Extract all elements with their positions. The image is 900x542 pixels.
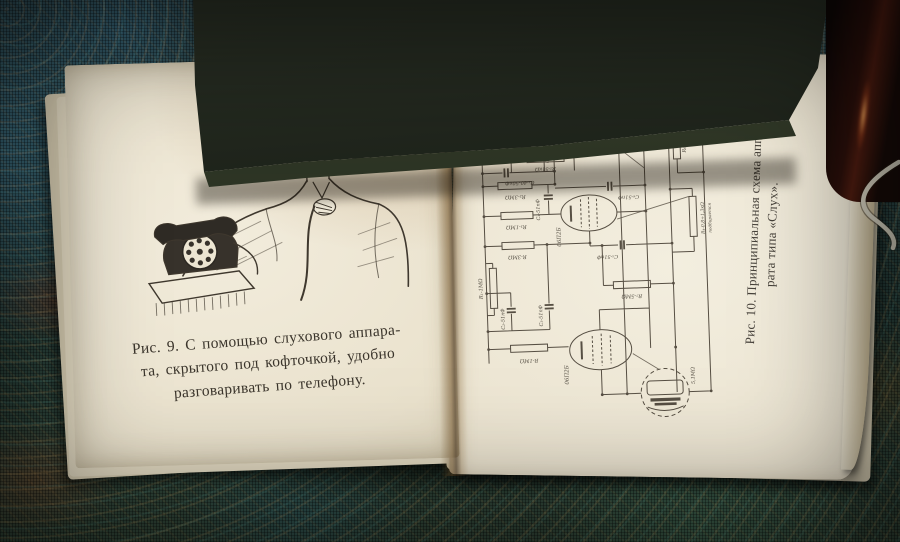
white-cable xyxy=(843,158,900,250)
label-c2: C₂-51пФ xyxy=(500,308,507,329)
label-mic: 5,1МΩ xyxy=(690,367,697,384)
label-tube3: 06П2Б xyxy=(564,365,571,385)
vacuum-tube-2 xyxy=(560,194,617,232)
label-c6: C₆-51пФ xyxy=(618,193,639,200)
label-r1: R₁-1МΩ xyxy=(478,278,485,301)
vacuum-tube-3 xyxy=(569,329,632,371)
label-c4: C₄-51пФ xyxy=(535,199,542,220)
label-r7: R₇-5МΩ xyxy=(621,292,644,299)
label-r-mid: R-3МΩ xyxy=(507,253,527,260)
label-r4-note: подбирается xyxy=(707,203,713,233)
label-c3: C₃-51пФ xyxy=(538,305,545,326)
label-c5: C₅-51пФ xyxy=(597,253,618,260)
label-r3: R₃-1МΩ xyxy=(505,223,528,230)
label-r4-value: R₄-0,8÷1,3кΩ xyxy=(700,202,707,235)
microphone-symbol xyxy=(640,368,690,418)
label-r2: R₂-3МΩ xyxy=(504,193,527,200)
label-tube2: 06П2Б xyxy=(556,227,563,247)
label-r-bottom: R-1МΩ xyxy=(519,357,539,364)
